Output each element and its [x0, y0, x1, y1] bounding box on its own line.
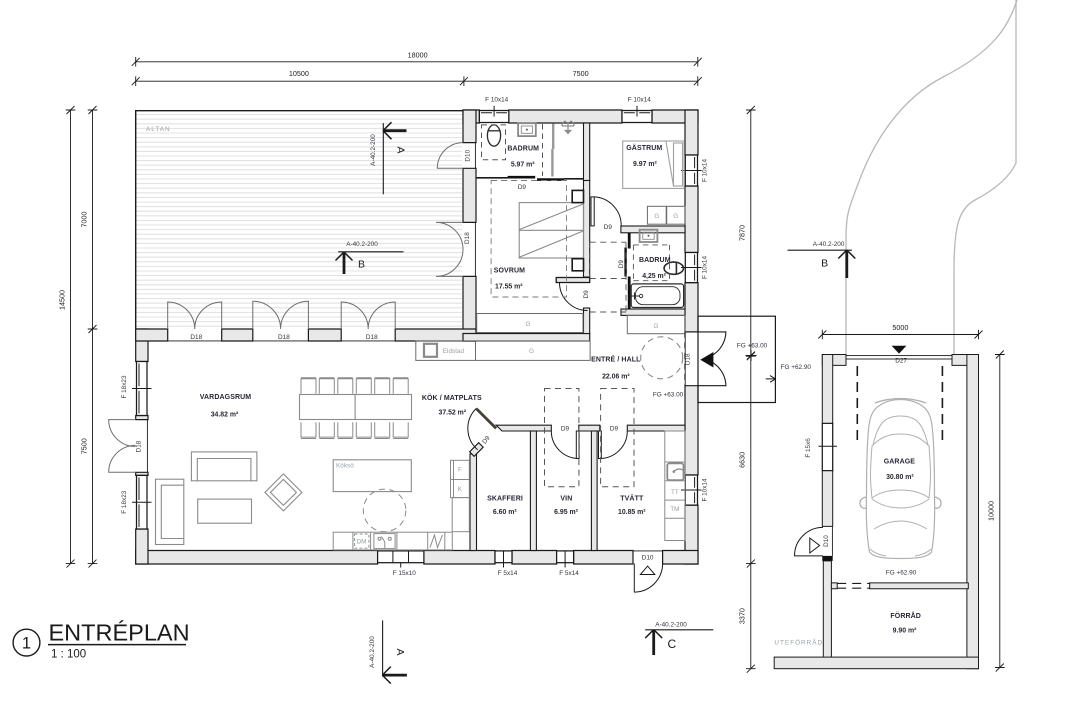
- svg-text:F 10x14: F 10x14: [485, 96, 509, 103]
- svg-text:18000: 18000: [408, 50, 428, 59]
- svg-text:D9: D9: [518, 184, 527, 191]
- svg-text:Eldstad: Eldstad: [443, 348, 465, 355]
- svg-text:30.80 m²: 30.80 m²: [886, 474, 914, 481]
- svg-text:1 : 100: 1 : 100: [51, 649, 86, 661]
- svg-text:6.95 m²: 6.95 m²: [554, 509, 578, 516]
- svg-text:7500: 7500: [573, 69, 589, 78]
- svg-text:D18: D18: [190, 334, 202, 341]
- svg-text:FÖRRÅD: FÖRRÅD: [890, 611, 921, 620]
- svg-text:A-40.2-200: A-40.2-200: [369, 636, 376, 668]
- svg-text:14500: 14500: [58, 290, 67, 310]
- svg-text:34.82 m²: 34.82 m²: [211, 411, 239, 418]
- svg-text:D9: D9: [610, 425, 619, 432]
- svg-text:BADRUM: BADRUM: [639, 257, 671, 264]
- svg-text:FG +63.00: FG +63.00: [653, 392, 684, 399]
- svg-text:F 10x14: F 10x14: [701, 256, 708, 280]
- svg-text:D18: D18: [278, 334, 290, 341]
- svg-text:F 5x14: F 5x14: [498, 570, 518, 577]
- svg-text:K: K: [458, 486, 463, 493]
- svg-text:D10: D10: [642, 554, 654, 561]
- svg-text:9.90 m²: 9.90 m²: [893, 627, 917, 634]
- svg-text:7870: 7870: [737, 225, 746, 241]
- svg-text:10.85 m²: 10.85 m²: [618, 509, 646, 516]
- svg-text:GARAGE: GARAGE: [884, 459, 916, 466]
- svg-text:Köksö: Köksö: [336, 463, 354, 470]
- svg-text:F 5x14: F 5x14: [559, 570, 579, 577]
- svg-text:FG +63.00: FG +63.00: [737, 343, 768, 350]
- svg-text:G: G: [673, 213, 678, 220]
- svg-text:7500: 7500: [80, 438, 89, 454]
- svg-text:KÖK / MATPLATS: KÖK / MATPLATS: [422, 393, 482, 402]
- svg-text:10000: 10000: [986, 501, 995, 521]
- svg-text:4,25 m²: 4,25 m²: [642, 273, 666, 280]
- svg-text:F: F: [458, 467, 462, 474]
- svg-text:D9: D9: [561, 425, 570, 432]
- svg-text:ALTAN: ALTAN: [146, 126, 171, 133]
- svg-text:TT: TT: [671, 489, 679, 496]
- svg-text:DM: DM: [357, 539, 367, 546]
- svg-text:SOVRUM: SOVRUM: [494, 268, 525, 275]
- svg-text:D18: D18: [136, 440, 143, 452]
- svg-text:5.97 m²: 5.97 m²: [511, 161, 535, 168]
- svg-text:F 10x14: F 10x14: [701, 159, 708, 183]
- svg-text:G: G: [526, 321, 531, 328]
- svg-text:G: G: [529, 348, 534, 355]
- svg-text:37.52 m²: 37.52 m²: [439, 409, 467, 416]
- svg-text:ENTRÉPLAN: ENTRÉPLAN: [49, 620, 190, 646]
- svg-text:10500: 10500: [289, 69, 309, 78]
- svg-text:D10: D10: [823, 535, 830, 547]
- svg-text:6.60 m²: 6.60 m²: [493, 509, 517, 516]
- svg-text:6630: 6630: [737, 452, 746, 468]
- svg-text:VIN: VIN: [560, 495, 572, 502]
- svg-text:A: A: [395, 146, 407, 153]
- svg-text:A-40.2-200: A-40.2-200: [370, 134, 377, 166]
- svg-text:D9: D9: [618, 260, 625, 269]
- svg-text:F 10x14: F 10x14: [628, 96, 652, 103]
- svg-text:1: 1: [22, 635, 31, 653]
- svg-text:7000: 7000: [80, 212, 89, 228]
- svg-text:F 15x10: F 15x10: [393, 570, 417, 577]
- svg-text:D18: D18: [366, 334, 378, 341]
- svg-text:TM: TM: [670, 506, 679, 513]
- svg-text:D10: D10: [465, 149, 472, 161]
- svg-text:ENTRÉ / HALL: ENTRÉ / HALL: [591, 355, 641, 364]
- svg-text:GÄSTRUM: GÄSTRUM: [626, 144, 662, 152]
- svg-text:D9: D9: [604, 224, 613, 231]
- svg-text:9.97 m²: 9.97 m²: [633, 161, 657, 168]
- svg-text:C: C: [667, 637, 676, 651]
- svg-text:D18: D18: [464, 232, 471, 244]
- svg-text:B: B: [821, 258, 828, 270]
- svg-text:A-40.2-200: A-40.2-200: [346, 241, 378, 248]
- svg-text:A: A: [394, 648, 406, 655]
- svg-text:FG +62.90: FG +62.90: [781, 364, 812, 371]
- svg-text:F 18x23: F 18x23: [121, 375, 128, 399]
- svg-text:3370: 3370: [737, 608, 746, 624]
- svg-text:D27: D27: [895, 357, 907, 364]
- svg-text:G: G: [654, 323, 659, 330]
- svg-text:A-40.2-200: A-40.2-200: [655, 621, 687, 628]
- svg-text:UTEFÖRRÅD: UTEFÖRRÅD: [774, 638, 823, 647]
- svg-text:B: B: [358, 258, 365, 270]
- svg-text:F 10x14: F 10x14: [701, 478, 708, 502]
- svg-text:F 18x23: F 18x23: [121, 490, 128, 514]
- svg-text:22.06 m²: 22.06 m²: [602, 374, 630, 381]
- svg-text:FG +62.90: FG +62.90: [886, 570, 917, 577]
- svg-text:TVÄTT: TVÄTT: [620, 494, 644, 502]
- svg-text:F 15x6: F 15x6: [805, 438, 812, 458]
- svg-text:5000: 5000: [892, 323, 908, 332]
- svg-text:BADRUM: BADRUM: [507, 145, 539, 152]
- svg-text:G: G: [654, 213, 659, 220]
- svg-text:VARDAGSRUM: VARDAGSRUM: [200, 394, 251, 401]
- svg-text:17.55 m²: 17.55 m²: [495, 283, 523, 290]
- svg-text:D9: D9: [583, 290, 590, 299]
- svg-text:A-40.2-200: A-40.2-200: [813, 241, 845, 248]
- svg-text:SKAFFERI: SKAFFERI: [487, 495, 523, 502]
